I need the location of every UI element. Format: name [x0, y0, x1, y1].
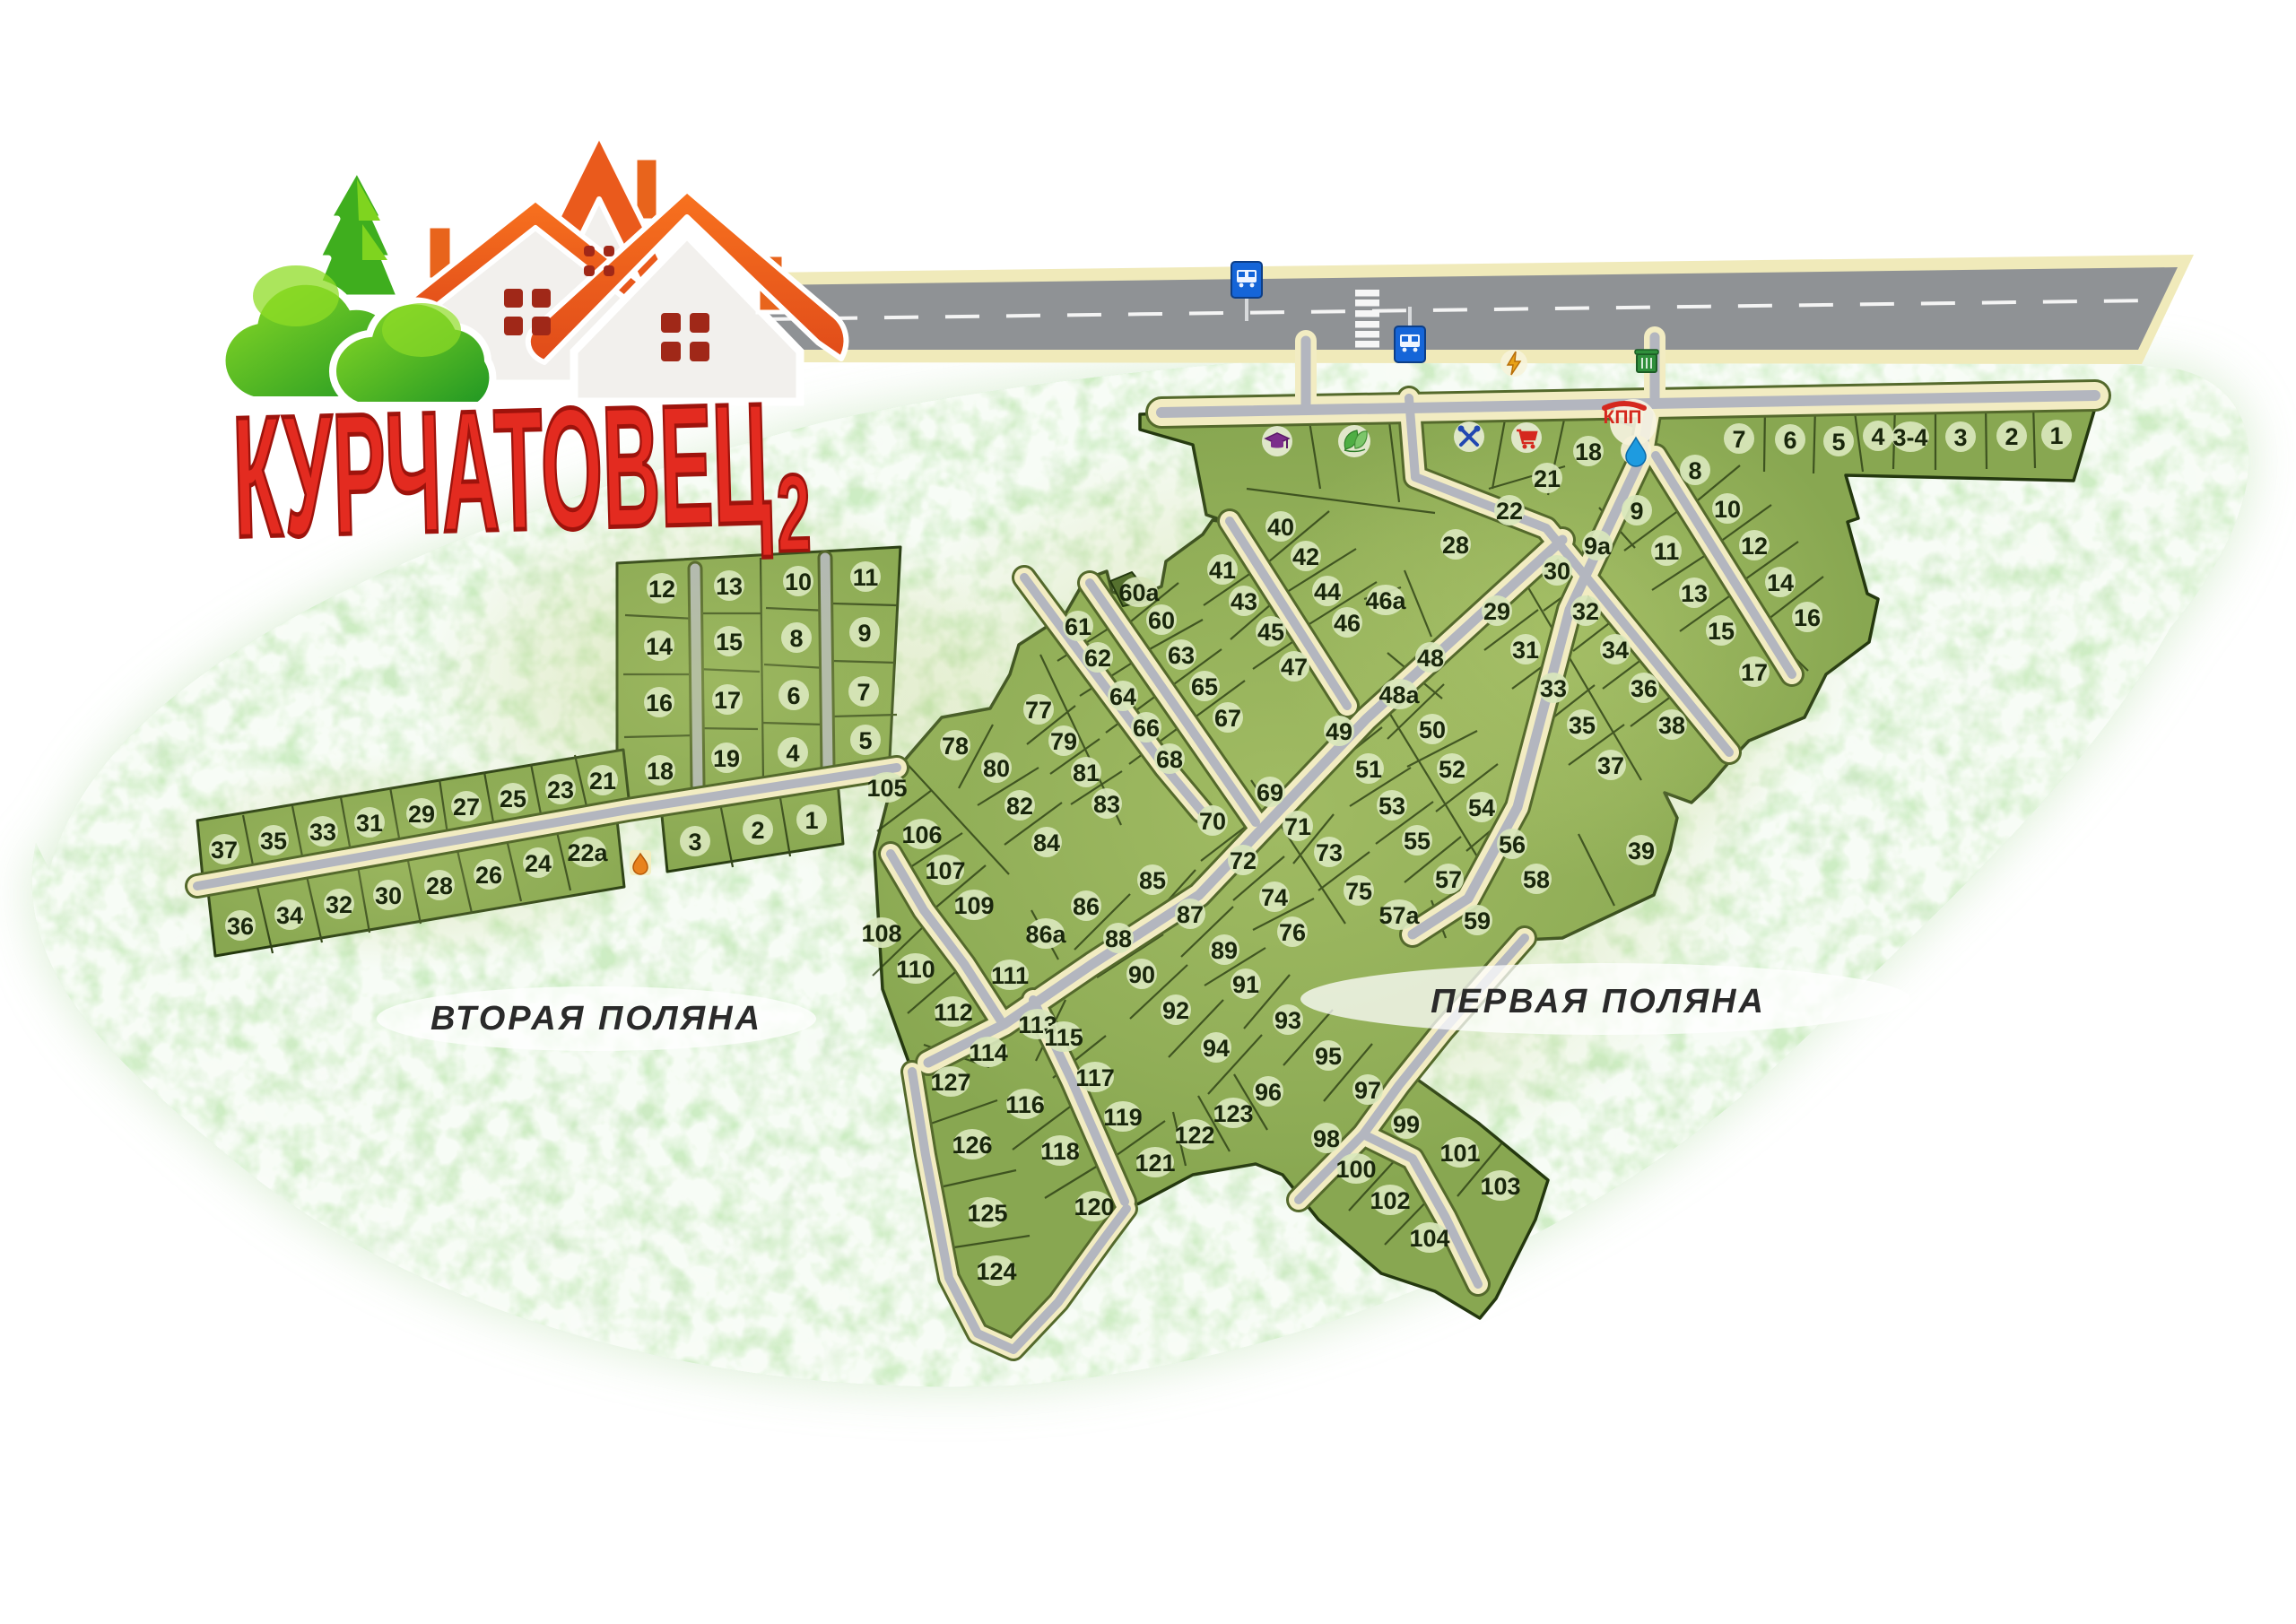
svg-text:45: 45 [1257, 619, 1284, 646]
svg-text:23: 23 [547, 777, 574, 803]
svg-text:119: 119 [1103, 1104, 1143, 1131]
svg-text:35: 35 [260, 828, 287, 855]
svg-text:106: 106 [901, 821, 942, 848]
svg-text:86: 86 [1073, 893, 1100, 920]
svg-text:4: 4 [1871, 423, 1884, 450]
svg-text:120: 120 [1074, 1194, 1114, 1220]
svg-text:18: 18 [647, 758, 674, 785]
svg-text:33: 33 [1540, 675, 1567, 702]
svg-text:21: 21 [589, 768, 616, 795]
svg-text:98: 98 [1313, 1125, 1340, 1152]
svg-text:3-4: 3-4 [1892, 424, 1927, 451]
svg-text:95: 95 [1315, 1043, 1342, 1070]
svg-text:60: 60 [1148, 607, 1175, 634]
svg-text:70: 70 [1199, 808, 1226, 835]
svg-text:2: 2 [751, 817, 764, 844]
svg-text:108: 108 [861, 920, 901, 947]
svg-text:19: 19 [713, 745, 740, 772]
svg-text:37: 37 [1597, 752, 1624, 779]
svg-text:62: 62 [1084, 645, 1111, 672]
svg-text:2: 2 [775, 451, 813, 575]
svg-text:КПП: КПП [1603, 407, 1641, 428]
svg-text:103: 103 [1480, 1173, 1520, 1200]
svg-text:118: 118 [1040, 1138, 1080, 1165]
svg-text:11: 11 [1654, 538, 1680, 565]
svg-text:64: 64 [1109, 683, 1136, 710]
svg-text:13: 13 [716, 573, 743, 600]
svg-text:87: 87 [1177, 901, 1204, 928]
svg-text:79: 79 [1050, 728, 1077, 755]
svg-text:1: 1 [804, 807, 818, 834]
svg-text:29: 29 [1483, 598, 1510, 625]
svg-text:9: 9 [857, 620, 871, 647]
svg-text:69: 69 [1257, 779, 1283, 806]
svg-text:99: 99 [1393, 1111, 1420, 1138]
svg-text:14: 14 [646, 633, 673, 660]
svg-text:КУРЧАТОВЕЦ: КУРЧАТОВЕЦ [230, 367, 772, 573]
svg-text:31: 31 [356, 810, 383, 837]
svg-text:17: 17 [714, 687, 741, 714]
svg-text:18: 18 [1575, 439, 1602, 465]
svg-text:123: 123 [1213, 1100, 1253, 1127]
svg-text:1: 1 [2049, 422, 2063, 449]
svg-text:124: 124 [976, 1258, 1016, 1285]
svg-text:115: 115 [1044, 1024, 1083, 1051]
svg-text:97: 97 [1354, 1077, 1381, 1104]
svg-text:39: 39 [1628, 838, 1655, 864]
svg-text:5: 5 [1831, 429, 1845, 456]
svg-text:57a: 57a [1378, 902, 1420, 929]
svg-text:53: 53 [1378, 793, 1405, 820]
svg-text:40: 40 [1267, 514, 1294, 541]
svg-text:ПЕРВАЯ ПОЛЯНА: ПЕРВАЯ ПОЛЯНА [1431, 983, 1766, 1020]
svg-text:121: 121 [1135, 1150, 1175, 1177]
svg-text:14: 14 [1767, 569, 1794, 596]
svg-text:12: 12 [1741, 533, 1768, 560]
svg-text:73: 73 [1316, 839, 1343, 866]
svg-text:94: 94 [1203, 1035, 1230, 1062]
svg-text:10: 10 [1714, 496, 1741, 523]
svg-text:78: 78 [942, 733, 969, 760]
svg-text:49: 49 [1326, 718, 1352, 745]
svg-text:27: 27 [453, 794, 480, 821]
svg-text:2: 2 [2005, 423, 2018, 450]
svg-text:90: 90 [1128, 961, 1155, 988]
svg-text:63: 63 [1168, 642, 1195, 669]
svg-text:76: 76 [1279, 919, 1306, 946]
svg-text:5: 5 [858, 727, 872, 754]
svg-text:3: 3 [688, 829, 701, 855]
svg-text:80: 80 [983, 755, 1010, 782]
svg-text:112: 112 [934, 999, 973, 1026]
svg-text:7: 7 [857, 679, 870, 706]
svg-text:60a: 60a [1118, 579, 1160, 606]
svg-text:74: 74 [1261, 884, 1288, 911]
svg-text:38: 38 [1658, 712, 1685, 739]
svg-text:52: 52 [1439, 756, 1465, 783]
svg-text:92: 92 [1162, 997, 1189, 1024]
svg-text:22: 22 [1496, 498, 1523, 525]
svg-text:58: 58 [1523, 866, 1550, 893]
svg-text:31: 31 [1512, 637, 1539, 664]
svg-text:37: 37 [211, 837, 238, 864]
svg-text:48: 48 [1417, 645, 1444, 672]
svg-text:72: 72 [1230, 847, 1257, 874]
svg-text:28: 28 [426, 873, 453, 899]
svg-text:32: 32 [326, 891, 352, 918]
svg-text:125: 125 [967, 1200, 1007, 1227]
svg-text:65: 65 [1191, 673, 1218, 700]
svg-text:82: 82 [1006, 793, 1033, 820]
svg-text:13: 13 [1681, 580, 1708, 607]
svg-text:126: 126 [952, 1132, 992, 1159]
svg-text:122: 122 [1174, 1122, 1214, 1149]
svg-text:85: 85 [1139, 867, 1166, 894]
svg-text:8: 8 [789, 625, 803, 652]
svg-text:100: 100 [1335, 1156, 1376, 1183]
svg-text:116: 116 [1005, 1091, 1045, 1118]
svg-text:46: 46 [1334, 610, 1361, 637]
svg-text:8: 8 [1688, 457, 1701, 484]
svg-text:4: 4 [786, 740, 799, 767]
svg-text:41: 41 [1209, 557, 1236, 584]
svg-text:32: 32 [1572, 598, 1599, 625]
svg-text:30: 30 [1544, 558, 1570, 585]
svg-text:84: 84 [1033, 829, 1060, 856]
svg-text:89: 89 [1211, 937, 1238, 964]
svg-text:22a: 22a [567, 839, 608, 866]
svg-text:36: 36 [1631, 675, 1657, 702]
svg-text:16: 16 [1794, 604, 1821, 631]
svg-text:28: 28 [1442, 532, 1469, 559]
svg-text:3: 3 [1953, 424, 1967, 451]
svg-text:35: 35 [1569, 712, 1596, 739]
svg-text:107: 107 [925, 857, 965, 884]
svg-text:36: 36 [227, 913, 254, 940]
svg-text:34: 34 [1602, 637, 1629, 664]
svg-text:15: 15 [716, 629, 743, 656]
svg-text:88: 88 [1105, 925, 1132, 952]
svg-text:54: 54 [1468, 795, 1495, 821]
svg-text:96: 96 [1255, 1079, 1282, 1106]
svg-text:93: 93 [1274, 1007, 1301, 1034]
svg-text:83: 83 [1093, 791, 1120, 818]
svg-text:11: 11 [853, 564, 879, 591]
svg-text:46a: 46a [1365, 587, 1406, 614]
svg-text:26: 26 [475, 862, 502, 889]
svg-text:50: 50 [1419, 716, 1446, 743]
svg-text:56: 56 [1499, 831, 1526, 858]
svg-text:15: 15 [1708, 618, 1735, 645]
svg-text:110: 110 [896, 956, 935, 983]
svg-text:17: 17 [1741, 659, 1768, 686]
svg-text:7: 7 [1732, 426, 1745, 453]
svg-text:117: 117 [1075, 1064, 1115, 1091]
svg-text:104: 104 [1409, 1225, 1449, 1252]
svg-text:66: 66 [1133, 715, 1160, 742]
svg-text:51: 51 [1355, 756, 1382, 783]
svg-text:30: 30 [375, 882, 402, 909]
svg-text:77: 77 [1025, 697, 1052, 724]
svg-text:33: 33 [309, 819, 336, 846]
svg-text:44: 44 [1314, 578, 1341, 605]
svg-text:127: 127 [930, 1069, 970, 1096]
svg-text:114: 114 [969, 1039, 1008, 1066]
svg-text:105: 105 [866, 775, 907, 802]
svg-text:48a: 48a [1378, 682, 1420, 708]
svg-text:75: 75 [1345, 878, 1372, 905]
svg-text:21: 21 [1534, 465, 1561, 492]
svg-text:55: 55 [1404, 828, 1431, 855]
svg-text:81: 81 [1073, 760, 1100, 786]
svg-text:ВТОРАЯ ПОЛЯНА: ВТОРАЯ ПОЛЯНА [430, 1000, 762, 1038]
svg-text:25: 25 [500, 786, 526, 812]
svg-text:67: 67 [1214, 705, 1241, 732]
svg-text:24: 24 [525, 850, 552, 877]
svg-text:6: 6 [1783, 427, 1796, 454]
svg-text:6: 6 [787, 682, 800, 709]
svg-text:34: 34 [276, 902, 303, 929]
svg-text:47: 47 [1281, 654, 1308, 681]
svg-text:43: 43 [1231, 588, 1257, 615]
svg-text:9: 9 [1630, 498, 1643, 525]
svg-text:102: 102 [1370, 1187, 1410, 1214]
svg-text:101: 101 [1439, 1140, 1480, 1167]
svg-text:71: 71 [1284, 813, 1311, 840]
svg-text:68: 68 [1156, 746, 1183, 773]
svg-text:91: 91 [1232, 971, 1259, 998]
svg-text:16: 16 [646, 690, 673, 716]
svg-text:29: 29 [408, 801, 435, 828]
svg-text:59: 59 [1464, 908, 1491, 934]
svg-text:111: 111 [991, 962, 1029, 989]
svg-text:61: 61 [1065, 613, 1091, 640]
svg-text:9a: 9a [1584, 533, 1612, 560]
svg-text:12: 12 [648, 576, 675, 603]
svg-text:42: 42 [1292, 543, 1319, 570]
svg-text:109: 109 [953, 892, 994, 919]
svg-text:86a: 86a [1025, 921, 1066, 948]
svg-text:57: 57 [1435, 866, 1462, 893]
